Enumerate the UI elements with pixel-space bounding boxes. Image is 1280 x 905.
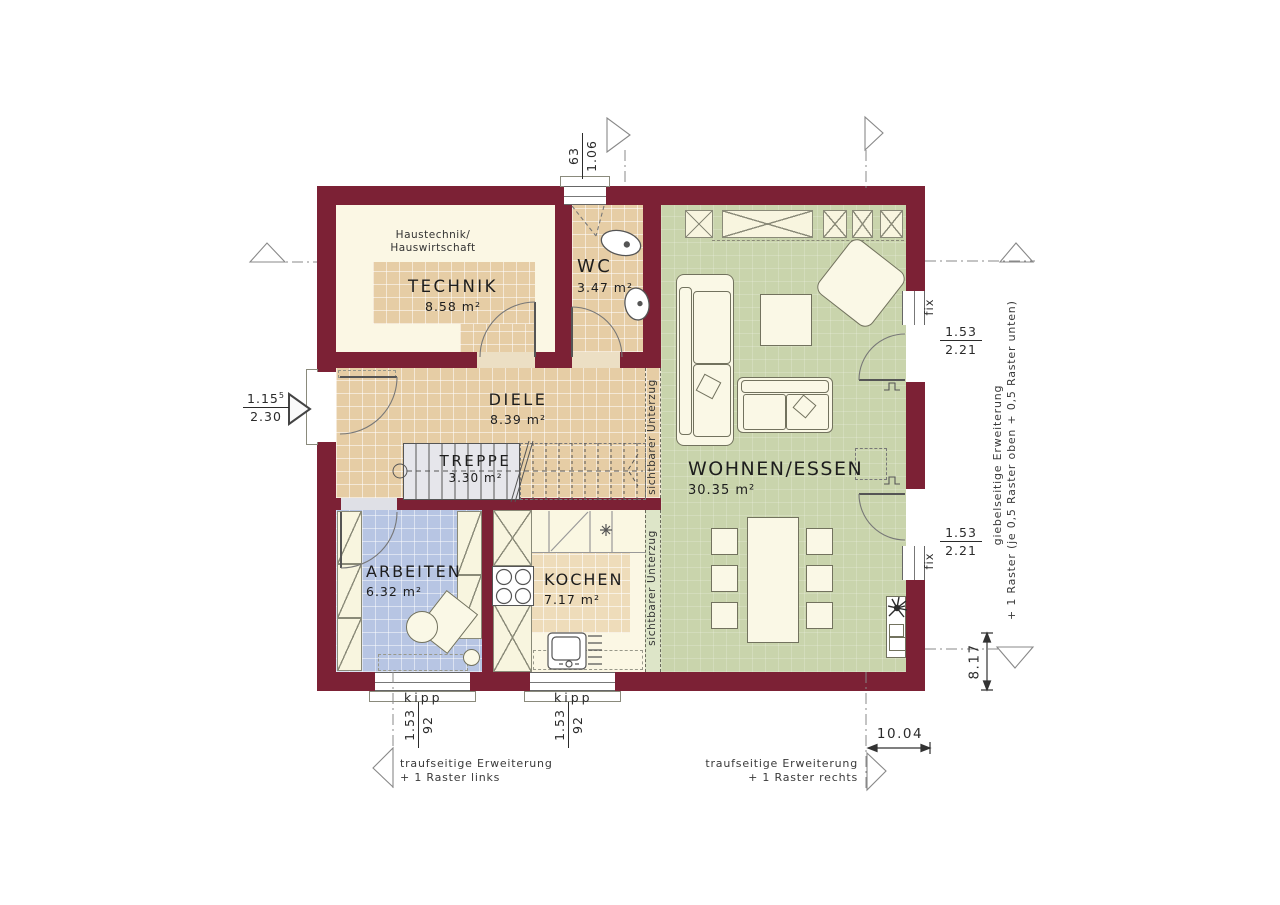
note-line: Haustechnik/ [383,229,483,242]
beam-text: sichtbarer Unterzug [646,379,658,495]
stove [492,566,534,606]
dining-chair [711,602,738,629]
dim-value: 1.53 [402,709,417,741]
sofa-back [741,380,829,393]
entrance-lintel-dashed [338,370,396,378]
marker-triangle-right-section [1000,243,1033,262]
shelf-unit [852,210,873,238]
terrace-door-bottom-opening [906,489,925,546]
floor-plan: TECHNIK 8.58 m² Haustechnik/ Hauswirtsch… [0,0,1280,905]
dim-bar [582,133,583,179]
beam-label-top: sichtbarer Unterzug [646,362,658,512]
dim-value: 2.21 [945,543,977,558]
room-label-kochen: KOCHEN 7.17 m² [544,570,639,607]
dim-value: 1.53 [552,709,567,741]
kipp-label-kochen: kipp [554,690,593,705]
note-line: Hauswirtschaft [383,242,483,255]
room-label-wc: WC 3.47 m² [577,256,657,295]
kochen-window [530,672,615,691]
room-label-technik: TECHNIK 8.58 m² [398,277,508,314]
room-label-arbeiten: ARBEITEN 6.32 m² [366,562,466,599]
sofa-long [676,274,734,446]
entrance-door-opening [317,372,336,442]
shelf-unit [685,210,713,238]
note-line: traufseitige Erweiterung [400,757,570,771]
fix-text: fix [922,298,936,315]
note-line: traufseitige Erweiterung [700,757,858,771]
stairs-dashed [520,443,646,500]
dim-bar [243,407,289,408]
dim-terrace-top: 1.53 2.21 [940,324,982,357]
fix-text: fix [922,552,936,569]
dim-value: 10.04 [877,726,923,742]
room-name: DIELE [468,390,568,409]
kipp-label-arbeiten: kipp [404,690,443,705]
marker-triangle-top-section [865,117,883,150]
beam-text: sichtbarer Unterzug [646,530,658,646]
dim-bar [940,541,982,542]
kitchen-dashed-projection [533,650,643,670]
dim-arbeiten-window: 1.53 92 [402,702,436,748]
note-line: giebelseitige Erweiterung [991,310,1005,620]
dim-total-height: 8.17 [967,640,982,684]
dining-chair [806,565,833,592]
plant-shelf-box [889,637,906,651]
arbeiten-cabinet [337,511,362,564]
wall-technik-wc [555,205,572,368]
dining-chair [806,528,833,555]
plant-shelf-box [889,624,904,637]
wall-wc-diele [620,352,643,368]
desk-chair [406,611,438,643]
dim-value: 92 [570,716,585,734]
sideboard [722,210,813,238]
room-name: KOCHEN [544,570,639,589]
arbeiten-cabinet [337,564,362,618]
sofa-cushion [743,394,786,430]
dining-chair [806,602,833,629]
threshold-technik-door [477,352,535,368]
dim-arrow [984,633,991,642]
gable-extension-note: giebelseitige Erweiterung + 1 Raster (je… [991,310,1017,620]
sofa-cushion [693,291,731,364]
dim-value: 1.53 [945,525,977,540]
room-label-diele: DIELE 8.39 m² [468,390,568,427]
outer-wall-top [317,186,925,205]
dining-chair [711,528,738,555]
note-line: + 1 Raster (je 0,5 Raster oben + 0,5 Ras… [1005,310,1019,620]
kitchen-tall-cabinet [493,510,532,566]
room-area: 8.58 m² [398,299,508,314]
room-label-treppe: TREPPE 3.30 m² [428,452,523,485]
room-area: 6.32 m² [366,584,466,599]
dining-table [747,517,799,643]
room-area: 7.17 m² [544,592,639,607]
kipp-text: kipp [404,690,443,705]
marker-triangle-wc-window [607,118,630,152]
room-name: WC [577,256,657,277]
room-name: ARBEITEN [366,562,466,581]
dim-value: 1.06 [584,140,599,172]
note-line: + 1 Raster rechts [700,771,858,785]
outer-wall-right [906,186,925,691]
marker-triangle-height [997,647,1033,668]
sofa-cushion [693,364,731,437]
dim-value: 8.17 [967,643,983,679]
dim-arrow [984,681,991,690]
room-area: 8.39 m² [468,412,568,427]
marker-triangle-eaves-right [867,753,886,790]
kipp-text: kipp [554,690,593,705]
arbeiten-dashed-projection [378,654,468,671]
marker-triangle-left-section [250,243,285,262]
wc-window [564,186,606,205]
dim-bar [418,702,419,748]
eaves-extension-right-note: traufseitige Erweiterung + 1 Raster rech… [700,757,858,784]
marker-triangle-eaves-left [373,748,393,787]
arbeiten-window [375,672,470,691]
room-area: 3.30 m² [428,471,523,485]
dim-bar [568,702,569,748]
dim-total-width: 10.04 [868,728,932,742]
threshold-wc-door [572,352,620,368]
dim-value: 2.30 [250,409,282,424]
dim-entrance: 1.155 2.30 [243,388,289,424]
sofa-small [737,377,833,433]
beam-label-bottom: sichtbarer Unterzug [646,513,658,663]
room-area: 3.47 m² [577,280,657,295]
shelf-unit [823,210,847,238]
room-name: TECHNIK [398,277,508,296]
dim-wc-window: 63 1.06 [566,133,600,179]
room-name: TREPPE [428,452,523,470]
room-name: WOHNEN/ESSEN [688,458,878,480]
threshold-arbeiten-door [341,498,397,510]
shelf-dashed-line [712,240,904,241]
note-line: + 1 Raster links [400,771,570,785]
dim-value: 2.21 [945,342,977,357]
dim-terrace-bottom: 1.53 2.21 [940,525,982,558]
dim-value: 92 [420,716,435,734]
dim-value: 1.53 [945,324,977,339]
terrace-door-top-opening [906,325,925,382]
coffee-table [760,294,812,346]
wall-pier-doors [535,352,555,368]
dim-value: 1.155 [247,388,285,406]
room-area: 30.35 m² [688,483,878,498]
room-label-wohnen: WOHNEN/ESSEN 30.35 m² [688,458,878,498]
dim-arrow [868,745,877,752]
dim-line-width [868,742,930,754]
kitchen-counter [530,510,645,553]
dim-arrow [921,745,930,752]
wall-technik-diele [336,352,477,368]
technik-note: Haustechnik/ Hauswirtschaft [383,229,483,255]
shelf-unit [880,210,903,238]
fix-label-bottom: fix [923,546,935,576]
sofa-back [679,287,692,435]
kitchen-tall-cabinet [493,603,532,672]
fix-label-top: fix [923,292,935,322]
dining-chair [711,565,738,592]
dim-value: 63 [566,147,581,165]
dim-line-height [981,633,993,690]
dim-kochen-window: 1.53 92 [552,702,586,748]
arbeiten-cabinet [337,618,362,671]
waste-bin [463,649,480,666]
dim-bar [940,340,982,341]
eaves-extension-left-note: traufseitige Erweiterung + 1 Raster link… [400,757,570,784]
